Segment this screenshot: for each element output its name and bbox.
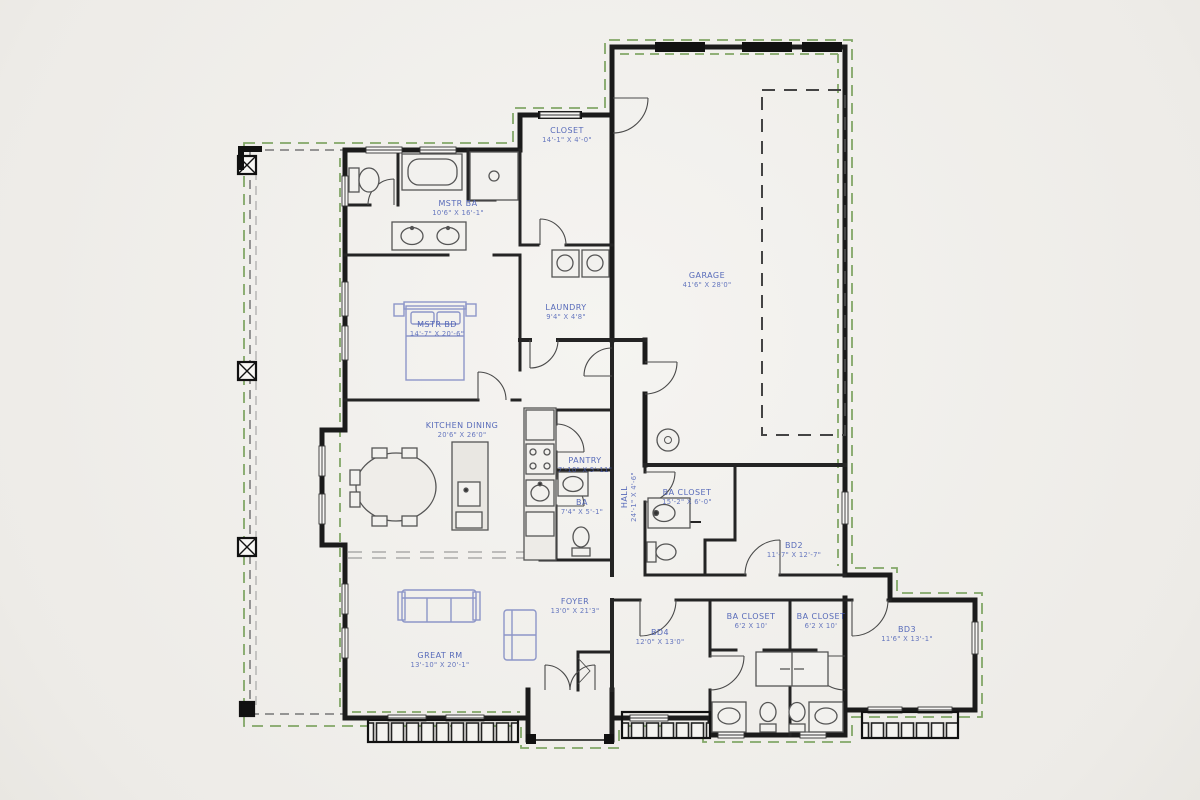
deck-strip [622,712,710,738]
window-icon [342,584,348,614]
room-label-bd4: BD412'0" X 13'0" [636,628,685,646]
window-icon [842,492,848,524]
shower-icon [470,152,518,200]
deck-strip [862,712,958,738]
window-icon [718,732,744,738]
window-icon [972,622,978,654]
range-icon [526,444,554,474]
room-label-pantry: PANTRY7'-10" X 5'-11" [558,456,612,474]
room-label-great-rm: GREAT RM13'-10" X 20'-1" [411,651,470,669]
room-label-ba-closet-right: BA CLOSET6'2 X 10' [797,612,846,630]
double-vanity-icon [392,222,466,250]
window-icon [420,147,456,153]
bath-fixtures [349,152,843,732]
refrigerator-icon [526,410,554,440]
window-icon [342,176,348,206]
kitchen-sink-icon [526,480,554,506]
island-sink-icon [458,482,480,506]
room-label-bd3: BD311'6" X 13'-1" [881,625,933,643]
window-icon [800,732,826,738]
window-icon [540,112,580,118]
ba-closet-toilet-icon [647,542,676,562]
bed-icon [394,302,476,380]
kitchen-island [452,442,488,530]
floor-plan: CLOSET14'-1" X 4'-0" MSTR BA10'6" X 16'-… [0,0,1200,800]
room-label-ba: BA7'4" X 5'-1" [561,498,603,516]
floor-plan-drawing [0,0,1200,800]
window-icon [319,446,325,476]
toilet-icon [349,168,379,192]
bath-right-toilet-icon [789,703,805,733]
hall-bath-toilet-icon [572,527,590,556]
bath-left-toilet-icon [760,703,776,733]
washer-dryer-icon [552,250,609,277]
hall-bath-sink-icon [558,472,588,496]
deck-strip [368,720,518,742]
water-heater-icon [657,429,679,451]
post-icon [238,362,256,380]
dining-table-icon [350,448,436,526]
window-icon [366,147,402,153]
bath-right-vanity-icon [809,702,843,732]
room-label-mstr-ba: MSTR BA10'6" X 16'-1" [432,199,484,217]
room-label-hall: HALL24'-1" X 4'-6" [620,472,638,522]
dishwasher-icon [526,512,554,536]
room-label-mstr-bd: MSTR BD14'-7" X 20'-6" [410,320,464,338]
bath-left-vanity-icon [712,702,746,732]
room-label-ba-closet-left: BA CLOSET6'2 X 10' [727,612,776,630]
window-icon [342,326,348,360]
chaise-icon [504,610,536,660]
room-label-kitchen-dining: KITCHEN DINING20'6" X 26'0" [426,421,499,439]
room-label-foyer: FOYER13'0" X 21'3" [551,597,600,615]
room-label-laundry: LAUNDRY9'4" X 4'8" [545,303,586,321]
window-icon [342,628,348,658]
room-label-closet: CLOSET14'-1" X 4'-0" [542,126,592,144]
post-icon [238,538,256,556]
room-label-ba-closet: BA CLOSET15'-2" X 6'-0" [662,488,712,506]
room-label-garage: GARAGE41'6" X 28'0" [683,271,732,289]
sofa-icon [398,590,480,622]
wall-headers [538,42,842,119]
room-label-bd2: BD211'-7" X 12'-7" [767,541,821,559]
window-icon [319,494,325,524]
bathtub-icon [402,154,462,190]
window-icon [342,282,348,316]
shared-shower-box [756,652,828,686]
